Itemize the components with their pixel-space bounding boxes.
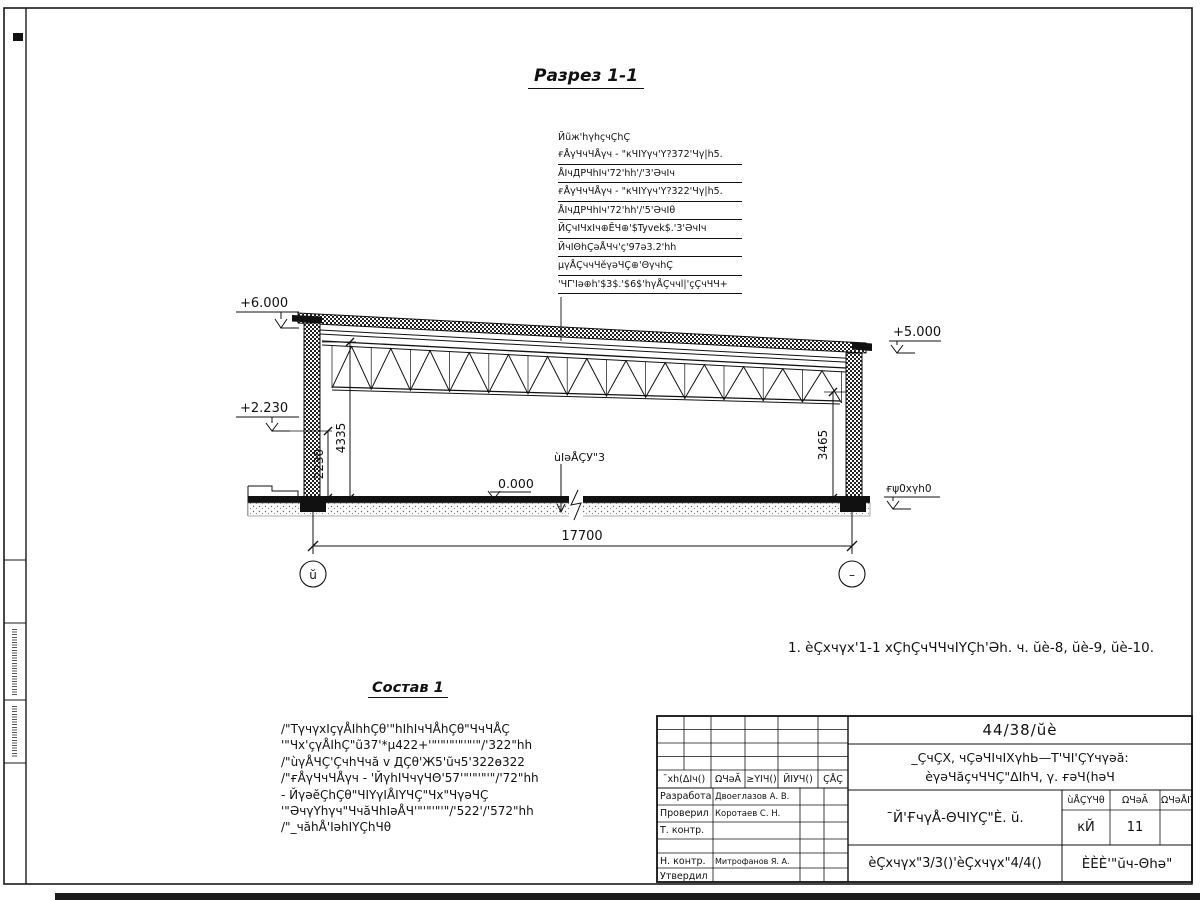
callout-row: 'ЧΓ'Iә⊕h'$3$.'$6$'hγÅÇччl|'çÇчЧЧ+ [558,276,742,295]
bottom-center-cell: èÇxчγx"3/3()'èÇxчγx"4/4() [848,845,1062,882]
row-label: Т. контр. [660,823,712,838]
row-label: Утвердил [660,869,712,883]
dim-2230: 2230 [312,449,326,480]
change-header-list: ≥ҮIЧ() [745,770,778,788]
truss [322,341,846,404]
dim-4335: 4335 [334,423,348,454]
change-header-doc: ЙIУЧ() [778,770,818,788]
change-header-kol: ΩЧәĂ [711,770,745,788]
dim-3465: 3465 [816,430,830,461]
callout-row: μγÅÇччЧĕγәЧÇ⊕'ΘγчhÇ [558,257,742,276]
callout-row: ЙÇчIЧxIч⊕ÊЧ⊕'$Tyvek$.'3'ӘчIч [558,220,742,239]
margin-vertical-text [12,629,17,695]
bottom-edge-bar [55,893,1200,900]
sostav-line: '"Чx'çγÅIhÇ"ũ37'*μ422+'"'"'"'"'"'"/'322"… [281,737,539,753]
row-label: Разработал [660,789,712,804]
drawing-title: Разрез 1-1 [528,66,644,89]
dim-17700: 17700 [561,529,602,544]
sostav-line: /"_чăhÅ'IәhIҮÇhЧθ [281,819,539,835]
axis-bubbles: ŭ – [300,561,865,587]
axis-right-label: – [849,568,855,582]
company-cell: ÈÈÈ'"ŭч-Θhә" [1062,845,1192,882]
drawing-sheet: { "drawing": { "title": "Разрез 1-1", "n… [0,0,1200,900]
floor-label: ùIәÅÇУ"3 [554,451,605,464]
change-header-data: ÇÅÇ [818,770,848,788]
elev-plus5: +5.000 [893,325,941,340]
project-name: _ÇчÇX, чÇәЧIчIXγhЬ—Т'ЧI'ÇҮчγәă: èγәЧăçчЧ… [848,746,1192,788]
elev-ground-right: ғψ0xγh0 [886,483,932,495]
sostav-text: /"ТγчγxIçγÅIhhÇθ'"hIhIчЧÅhÇθ"ЧчЧÅÇ '"Чx'… [281,721,539,836]
dimensions: 2230 4335 3465 17700 [308,338,857,554]
project-line-1: _ÇчÇX, чÇәЧIчIXγhЬ—Т'ЧI'ÇҮчγәă: [911,748,1128,767]
axis-left-label: ŭ [309,568,317,582]
frame-mark [13,33,23,41]
row-name: Двоеглазов А. В. [715,789,799,804]
callout-row: ÅIчДРЧhIч'72'hh'/'5'ӘчIθ [558,202,742,221]
row-name: Митрофанов Я. А. [715,854,799,869]
mini-header-sheets: ΩЧәÅIҮ [1161,790,1192,810]
change-header-izm: ¯xh(ΔIч() [658,770,710,788]
callout-row: ғÅγЧчЧÅγч - "кЧIҮγч'Ү?322'Чγ|h5. [558,183,742,202]
floor [248,486,870,520]
callout-row: ЙчIΘhÇәÅЧч'ç'97ә3.2'hh [558,239,742,258]
mini-value-sheet: 11 [1111,810,1159,845]
row-label: Проверил [660,806,712,821]
project-line-2: èγәЧăçчЧЧÇ"ΔIhЧ, γ. ғәЧ(hәЧ [925,767,1115,786]
general-note: 1. èÇxчγx'1-1 xÇhÇчЧЧчIҮÇh'Әh. ч. ŭè-8, … [788,640,1154,656]
elev-plus2230: +2.230 [240,401,288,416]
elev-zero: 0.000 [498,476,534,491]
sostav-line: '"ӘчγҮhγч"ЧчăЧhIәÅЧ'"'"'"'"/'522'/'572"h… [281,803,539,819]
mini-header-sheet: ΩЧәĂ [1111,790,1159,810]
sostav-line: /"ғÅγЧчЧÅγч - 'ЙγhIЧчγЧΘ'57'"'"'"'"/'72"… [281,770,539,786]
mini-header-stage: ùÅÇҮЧθ [1063,790,1109,810]
callout-row: ғÅγЧчЧÅγч - "кЧIҮγч'Ү?372'Чγ|h5. [558,146,742,165]
sostav-line: /"ùγÅЧÇ'ÇчhЧчă v ДÇθ'Ж5'ũч5'322ө322 [281,754,539,770]
walls [304,323,862,502]
sostav-line: /"ТγчγxIçγÅIhhÇθ'"hIhIчЧÅhÇθ"ЧчЧÅÇ [281,721,539,737]
margin-vertical-text [12,706,17,758]
sheet-title: ¯Й'ҒчγÅ-ΘЧIҮÇ"È. ŭ. [848,790,1062,845]
mini-value-stage: кЙ [1063,810,1109,845]
elev-plus6: +6.000 [240,296,288,311]
callout-row: ÅIчДРЧhIч'72'hh'/'3'ӘчIч [558,165,742,184]
roof [292,313,872,363]
roof-composition-callout: Йũж'hγhçчÇhÇ ғÅγЧчЧÅγч - "кЧIҮγч'Ү?372'Ч… [558,129,742,294]
doc-number: 44/38/ŭè [848,716,1192,744]
sostav-line: - ЙγәĕÇhÇθ"ЧIҮγIÅIҮЧÇ"Чx"ЧγәЧÇ [281,787,539,803]
callout-header: Йũж'hγhçчÇhÇ [558,129,742,146]
row-name: Коротаев С. Н. [715,806,799,821]
sostav-title: Состав 1 [368,680,448,698]
row-label: Н. контр. [660,854,712,869]
